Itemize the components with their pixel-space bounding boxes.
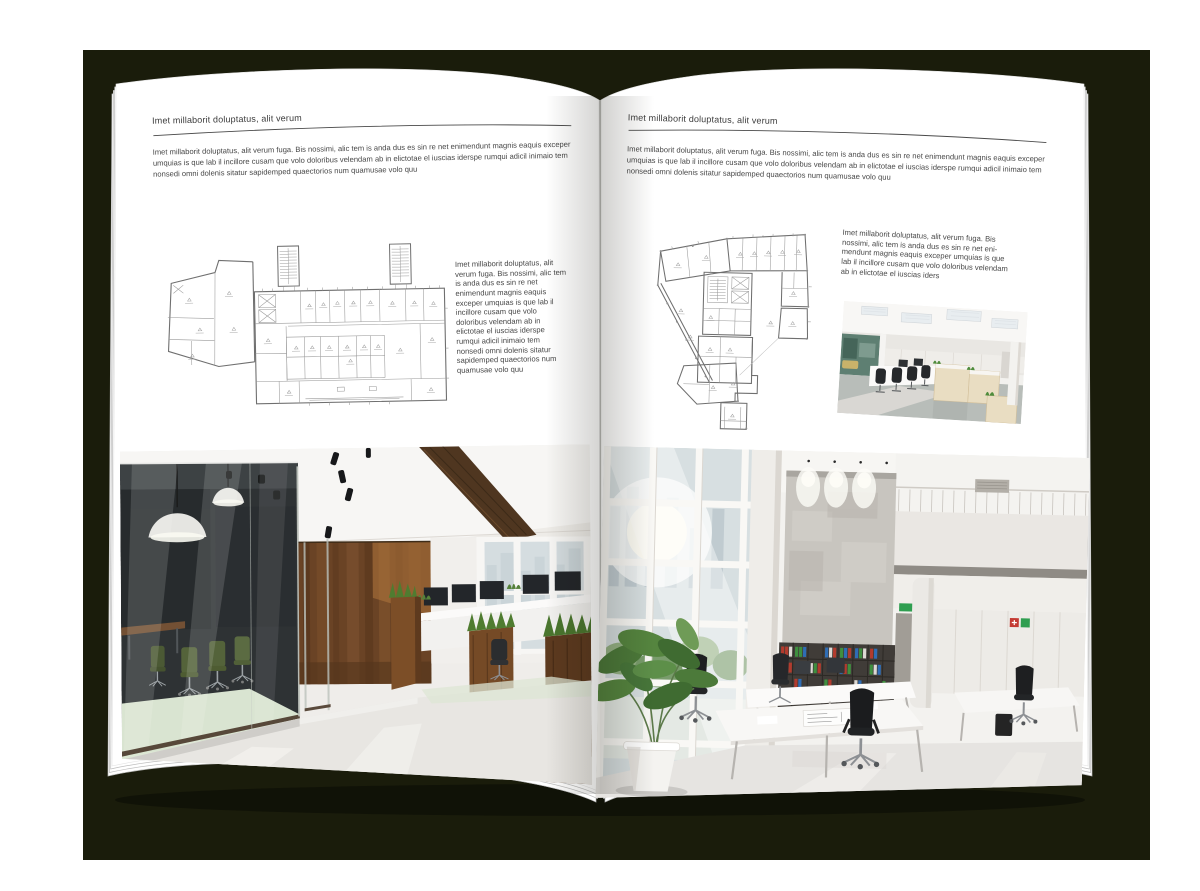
right-cabinets [928, 609, 1086, 697]
left-office-photo [120, 444, 592, 787]
left-intro-paragraph: Imet millaborit doluptatus, alit verum f… [153, 139, 574, 180]
small-office-photo [837, 301, 1027, 424]
right-office-photo [595, 446, 1089, 810]
left-page-content: Imet millaborit doluptatus, alit verum I… [138, 108, 580, 436]
meeting-room [120, 462, 301, 759]
right-floor-plan [638, 223, 837, 434]
right-side-text: Imet millaborit doluptatus, alit verum f… [841, 228, 1017, 284]
right-intro-paragraph: Imet millaborit doluptatus, alit verum f… [626, 143, 1047, 186]
brochure-mockup-stage: Imet millaborit doluptatus, alit verum I… [0, 0, 1200, 891]
left-floor-plan [156, 228, 454, 420]
concrete-wall [782, 466, 896, 645]
left-side-text: Imet millaborit doluptatus, alit verum f… [455, 258, 569, 376]
